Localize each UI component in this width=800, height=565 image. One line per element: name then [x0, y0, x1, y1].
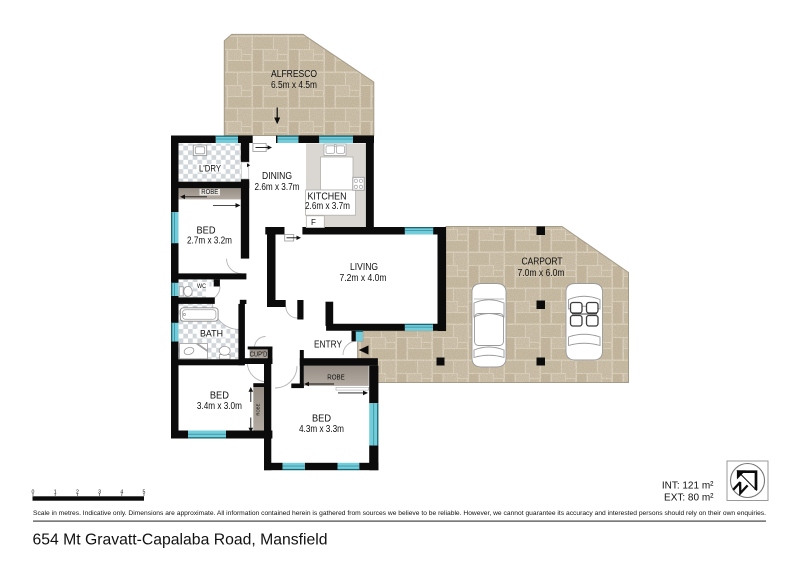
- svg-text:ROBE: ROBE: [327, 373, 345, 382]
- svg-text:7.2m x 4.0m: 7.2m x 4.0m: [340, 273, 387, 284]
- svg-text:CARPORT: CARPORT: [522, 257, 563, 268]
- svg-text:2.6m x 3.7m: 2.6m x 3.7m: [305, 201, 350, 212]
- svg-text:4.3m x 3.3m: 4.3m x 3.3m: [299, 424, 344, 435]
- svg-text:ROBE: ROBE: [201, 189, 218, 196]
- svg-text:2.7m x 3.2m: 2.7m x 3.2m: [187, 236, 232, 247]
- svg-text:L'DRY: L'DRY: [199, 164, 221, 174]
- svg-text:BATH: BATH: [200, 329, 223, 340]
- svg-text:WC: WC: [197, 283, 206, 290]
- svg-text:7.0m x 6.0m: 7.0m x 6.0m: [518, 268, 565, 279]
- svg-text:ROBE: ROBE: [255, 404, 260, 416]
- svg-text:BED: BED: [210, 391, 229, 402]
- svg-text:3.4m x 3.0m: 3.4m x 3.0m: [197, 401, 242, 412]
- svg-text:EXT: 80 m²: EXT: 80 m²: [664, 493, 714, 504]
- svg-text:DINING: DINING: [262, 171, 292, 182]
- svg-text:CUP'D: CUP'D: [250, 352, 268, 359]
- svg-text:LIVING: LIVING: [350, 262, 378, 273]
- svg-text:INT: 121 m²: INT: 121 m²: [662, 481, 714, 492]
- svg-text:ENTRY: ENTRY: [314, 340, 342, 351]
- svg-text:F: F: [311, 218, 316, 227]
- svg-text:BED: BED: [312, 414, 331, 425]
- svg-text:Scale in metres. Indicative on: Scale in metres. Indicative only. Dimens…: [33, 510, 766, 517]
- svg-text:ALFRESCO: ALFRESCO: [271, 69, 317, 80]
- svg-text:2.6m x 3.7m: 2.6m x 3.7m: [255, 182, 300, 193]
- svg-text:654 Mt Gravatt-Capalaba Road,: 654 Mt Gravatt-Capalaba Road, Mansfield: [33, 532, 328, 549]
- svg-text:6.5m x 4.5m: 6.5m x 4.5m: [271, 80, 317, 91]
